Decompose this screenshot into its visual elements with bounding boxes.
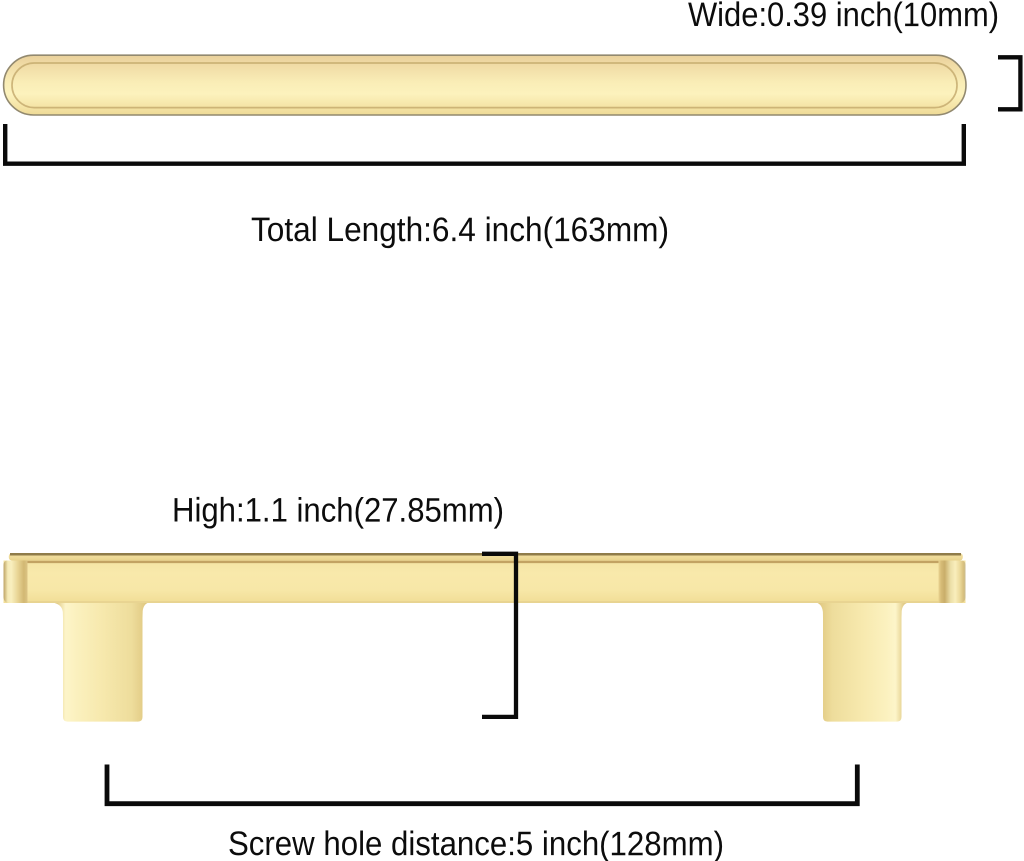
svg-text:Total Length:6.4 inch(163mm): Total Length:6.4 inch(163mm) [251, 211, 669, 249]
svg-text:Screw hole distance:5 inch(128: Screw hole distance:5 inch(128mm) [228, 825, 724, 861]
svg-text:Wide:0.39 inch(10mm): Wide:0.39 inch(10mm) [688, 0, 999, 34]
svg-text:High:1.1 inch(27.85mm): High:1.1 inch(27.85mm) [172, 492, 504, 530]
